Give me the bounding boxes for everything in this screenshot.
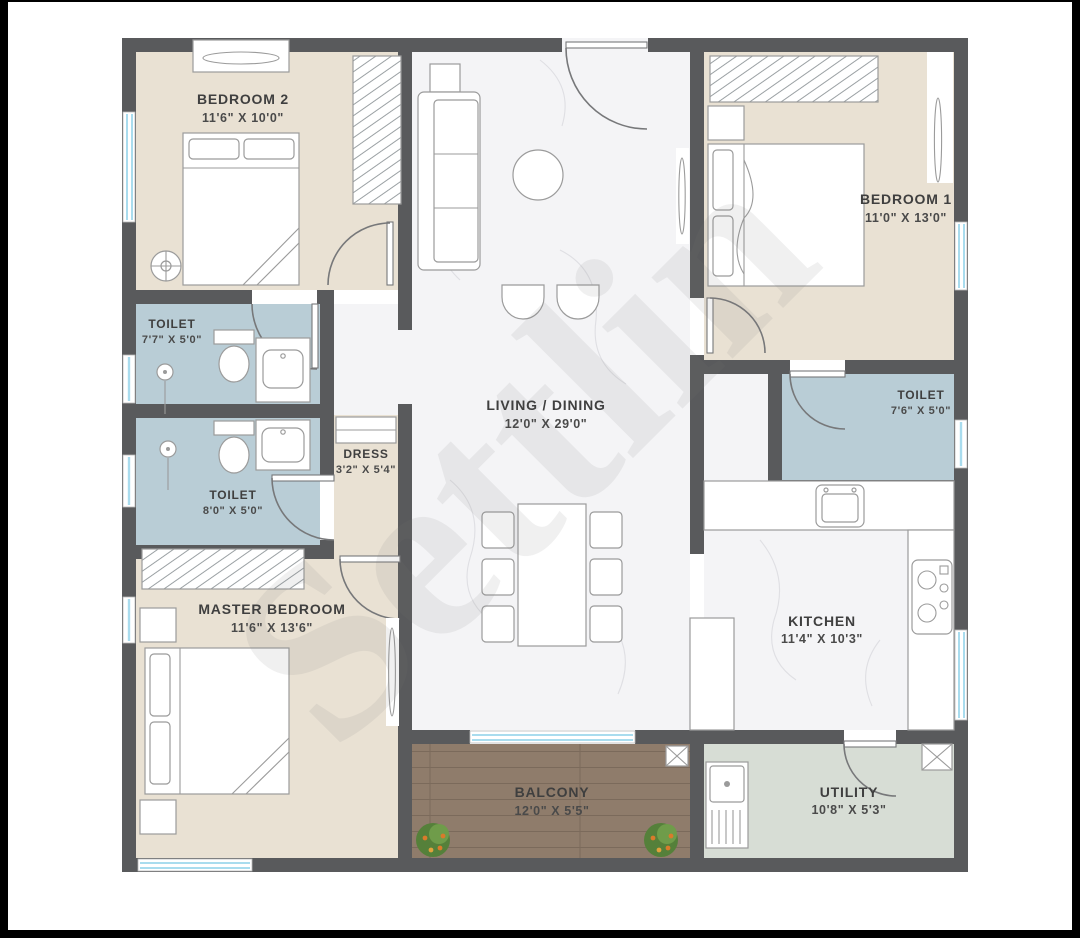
nightstand	[708, 106, 744, 140]
bedroom2-window	[123, 112, 135, 222]
wardrobe	[353, 56, 401, 204]
toilet3-window	[955, 420, 967, 468]
plant-icon	[416, 823, 450, 857]
svg-text:7'7" X 5'0": 7'7" X 5'0"	[142, 334, 202, 346]
master-bottom-window	[138, 859, 252, 871]
ceiling-fan-icon	[151, 251, 181, 281]
plant-icon	[644, 823, 678, 857]
toilet1-window	[123, 355, 135, 403]
floor-plan-page: Settlin BEDROOM 2 11'6" X 10'0" TOILET 7…	[0, 0, 1080, 938]
wardrobe	[710, 56, 878, 102]
balcony-sliding-door	[470, 731, 635, 743]
floor-plan-drawing: Settlin BEDROOM 2 11'6" X 10'0" TOILET 7…	[0, 0, 1080, 938]
kitchen-window	[955, 630, 967, 720]
sofa	[418, 92, 480, 270]
svg-text:LIVING / DINING: LIVING / DINING	[486, 397, 605, 413]
svg-text:10'8" X 5'3": 10'8" X 5'3"	[811, 803, 886, 817]
svg-text:12'0" X 29'0": 12'0" X 29'0"	[505, 417, 588, 431]
svg-text:KITCHEN: KITCHEN	[788, 613, 856, 629]
svg-text:11'4" X 10'3": 11'4" X 10'3"	[781, 632, 863, 646]
dining-chair	[590, 606, 622, 642]
nightstand	[140, 608, 176, 642]
bed	[183, 133, 299, 285]
svg-text:TOILET: TOILET	[897, 388, 944, 402]
master-side-window	[123, 597, 135, 643]
svg-text:DRESS: DRESS	[343, 447, 388, 461]
shaft-icon	[666, 746, 688, 766]
svg-text:12'0" X 5'5": 12'0" X 5'5"	[514, 804, 589, 818]
svg-text:TOILET: TOILET	[209, 488, 256, 502]
toilet2-window	[123, 455, 135, 507]
washbasin-icon	[256, 338, 310, 402]
svg-text:11'6" X 10'0": 11'6" X 10'0"	[202, 111, 284, 125]
svg-text:TOILET: TOILET	[148, 317, 195, 331]
shaft-icon	[922, 744, 952, 770]
bedroom1-window	[955, 222, 967, 290]
svg-text:3'2" X 5'4": 3'2" X 5'4"	[336, 464, 396, 476]
svg-text:MASTER BEDROOM: MASTER BEDROOM	[198, 601, 345, 617]
side-table	[430, 64, 460, 92]
svg-text:BEDROOM 2: BEDROOM 2	[197, 91, 289, 107]
svg-text:11'6" X 13'6": 11'6" X 13'6"	[231, 621, 313, 635]
svg-text:11'0" X 13'0": 11'0" X 13'0"	[865, 211, 947, 225]
svg-text:BEDROOM 1: BEDROOM 1	[860, 191, 952, 207]
svg-text:8'0" X 5'0": 8'0" X 5'0"	[203, 505, 263, 517]
svg-text:UTILITY: UTILITY	[820, 784, 878, 800]
hob-icon	[912, 560, 952, 634]
dresser	[193, 40, 289, 72]
washbasin-icon	[256, 420, 310, 470]
wash-sink-icon	[706, 762, 748, 848]
tv-unit	[927, 52, 953, 183]
kitchen-counter-left	[690, 618, 734, 730]
kitchen-sink-icon	[816, 485, 864, 527]
nightstand	[140, 800, 176, 834]
svg-text:7'6" X 5'0": 7'6" X 5'0"	[891, 405, 951, 417]
svg-text:BALCONY: BALCONY	[515, 784, 590, 800]
coffee-table	[513, 150, 563, 200]
